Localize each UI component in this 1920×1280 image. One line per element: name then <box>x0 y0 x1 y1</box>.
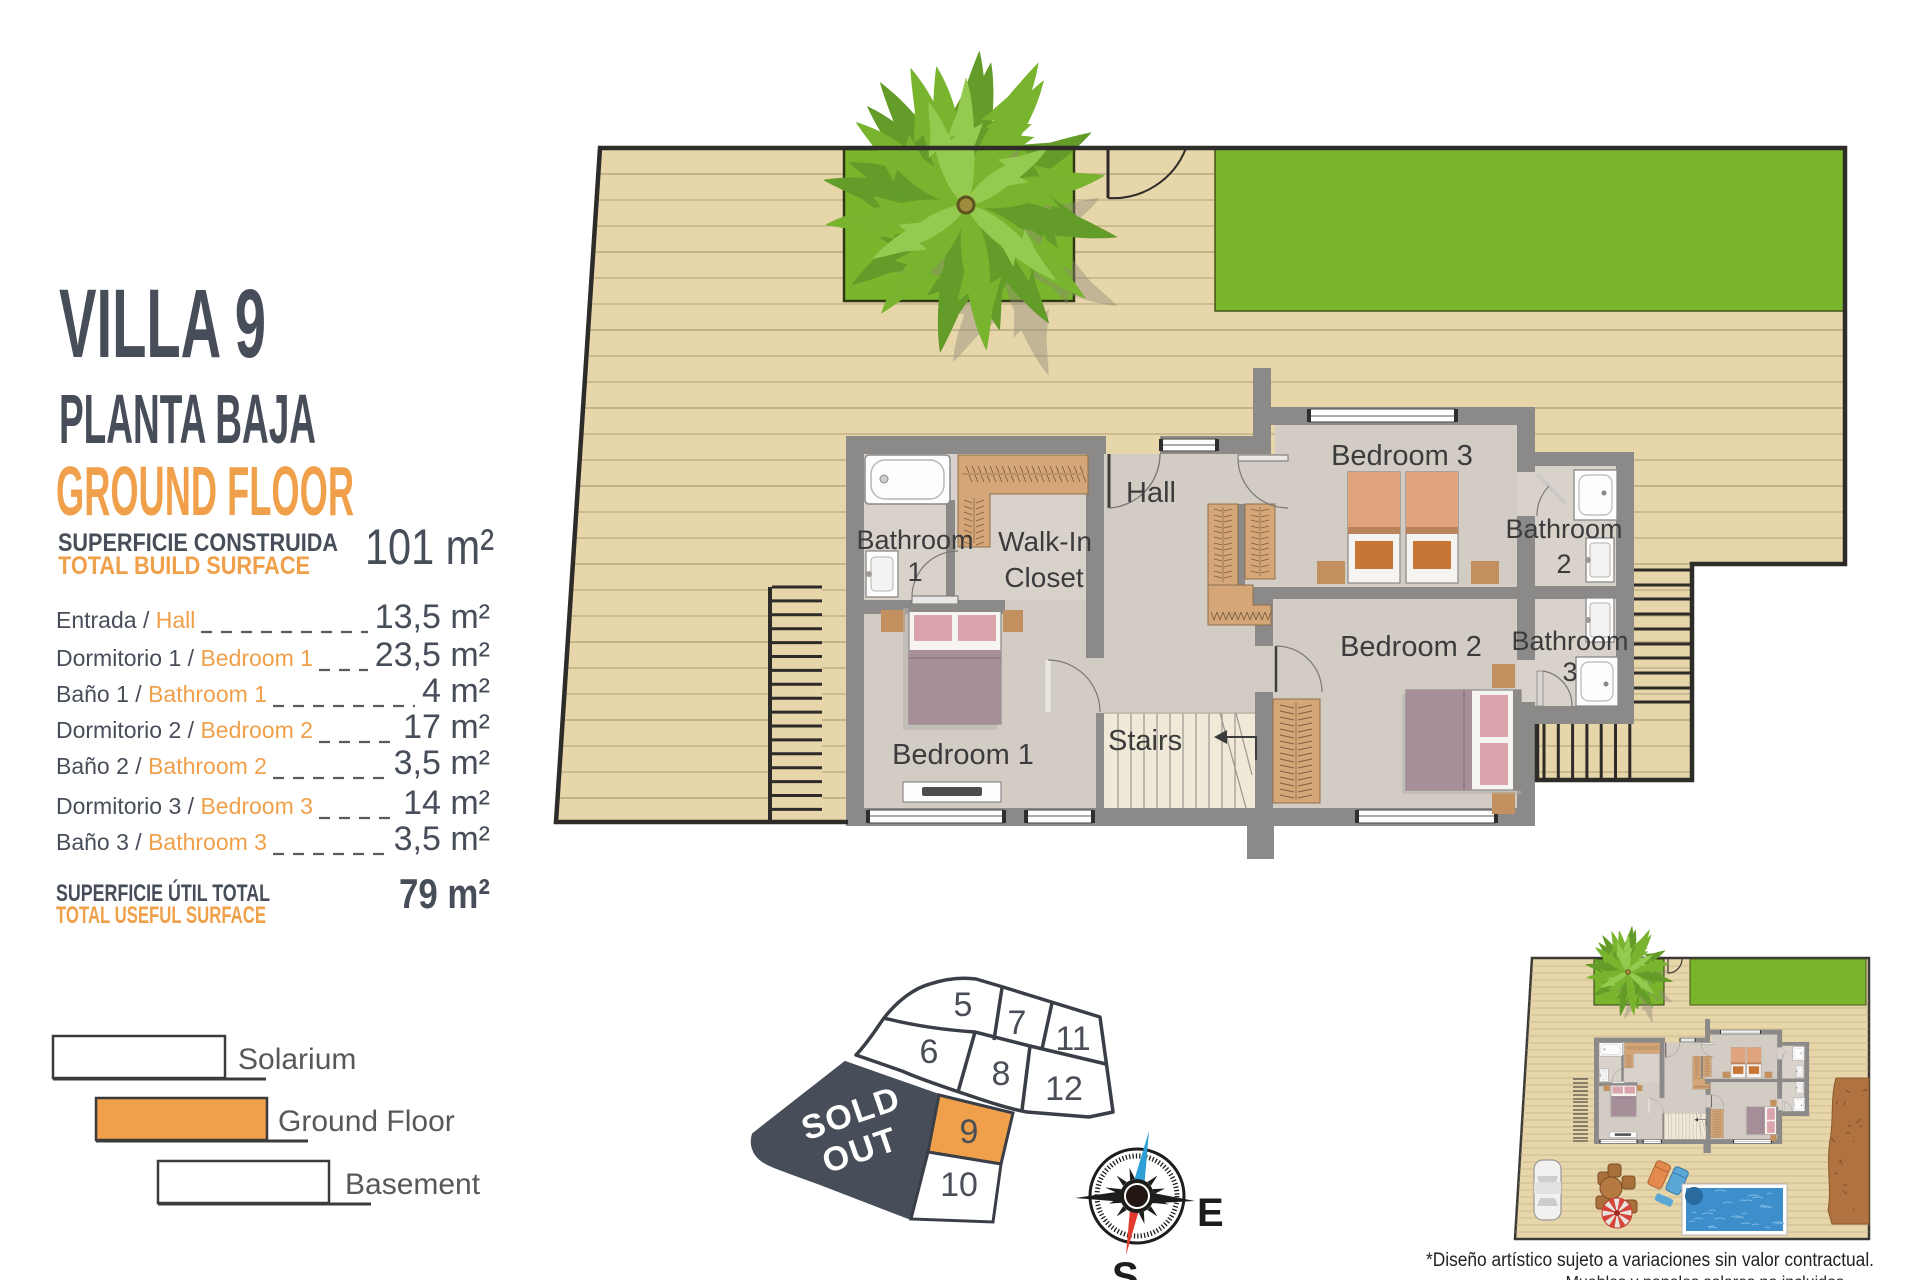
svg-text:6: 6 <box>920 1033 939 1071</box>
svg-text:Bedroom 3: Bedroom 3 <box>1331 440 1473 472</box>
svg-text:Bathroom: Bathroom <box>1511 626 1628 656</box>
svg-text:PLANTA BAJA: PLANTA BAJA <box>59 380 316 458</box>
svg-text:79 m²: 79 m² <box>399 870 490 917</box>
svg-text:Baño 1 / Bathroom 1: Baño 1 / Bathroom 1 <box>56 681 267 707</box>
svg-text:Basement: Basement <box>345 1168 481 1201</box>
svg-text:3,5 m²: 3,5 m² <box>394 820 490 858</box>
svg-text:Stairs: Stairs <box>1108 725 1182 757</box>
svg-text:Baño 3 / Bathroom 3: Baño 3 / Bathroom 3 <box>56 829 267 855</box>
svg-text:Dormitorio 1 / Bedroom 1: Dormitorio 1 / Bedroom 1 <box>56 645 313 671</box>
svg-text:11: 11 <box>1055 1020 1090 1058</box>
svg-text:Dormitorio 2 / Bedroom 2: Dormitorio 2 / Bedroom 2 <box>56 717 313 743</box>
svg-text:3: 3 <box>1562 657 1577 687</box>
svg-text:Baño 2 / Bathroom 2: Baño 2 / Bathroom 2 <box>56 753 267 779</box>
svg-text:Bedroom 2: Bedroom 2 <box>1340 631 1482 663</box>
svg-text:Hall: Hall <box>1126 477 1176 509</box>
svg-text:14 m²: 14 m² <box>403 784 490 822</box>
svg-text:23,5 m²: 23,5 m² <box>375 636 490 674</box>
svg-text:12: 12 <box>1045 1070 1083 1108</box>
svg-text:Bathroom: Bathroom <box>1505 514 1622 544</box>
svg-text:101 m²: 101 m² <box>365 519 494 575</box>
svg-text:Entrada / Hall: Entrada / Hall <box>56 607 195 633</box>
svg-text:GROUND FLOOR: GROUND FLOOR <box>56 452 354 530</box>
svg-text:5: 5 <box>954 986 973 1024</box>
svg-text:TOTAL BUILD SURFACE: TOTAL BUILD SURFACE <box>58 552 310 580</box>
svg-text:13,5 m²: 13,5 m² <box>375 598 490 636</box>
svg-text:E: E <box>1197 1191 1224 1235</box>
svg-text:4 m²: 4 m² <box>422 672 490 710</box>
svg-text:10: 10 <box>940 1166 978 1204</box>
svg-text:17 m²: 17 m² <box>403 708 490 746</box>
svg-text:8: 8 <box>992 1055 1011 1093</box>
svg-text:Bedroom 1: Bedroom 1 <box>892 739 1034 771</box>
svg-text:Solarium: Solarium <box>238 1043 356 1076</box>
svg-text:Closet: Closet <box>1004 562 1084 593</box>
svg-text:7: 7 <box>1008 1004 1027 1042</box>
svg-text:S: S <box>1112 1255 1139 1280</box>
svg-text:Ground Floor: Ground Floor <box>278 1105 455 1138</box>
svg-text:Bathroom: Bathroom <box>856 525 973 555</box>
svg-text:TOTAL USEFUL SURFACE: TOTAL USEFUL SURFACE <box>56 902 266 929</box>
svg-text:9: 9 <box>960 1113 979 1151</box>
svg-text:Walk-In: Walk-In <box>998 526 1092 557</box>
svg-text:2: 2 <box>1556 549 1571 579</box>
svg-text:1: 1 <box>907 557 922 587</box>
svg-text:Dormitorio 3 / Bedroom 3: Dormitorio 3 / Bedroom 3 <box>56 793 313 819</box>
svg-text:3,5 m²: 3,5 m² <box>394 744 490 782</box>
svg-text:*Diseño artístico sujeto a var: *Diseño artístico sujeto a variaciones s… <box>1426 1250 1874 1271</box>
svg-text:Muebles y paneles solares no i: Muebles y paneles solares no incluidos. <box>1566 1274 1849 1280</box>
svg-text:VILLA 9: VILLA 9 <box>59 269 266 378</box>
